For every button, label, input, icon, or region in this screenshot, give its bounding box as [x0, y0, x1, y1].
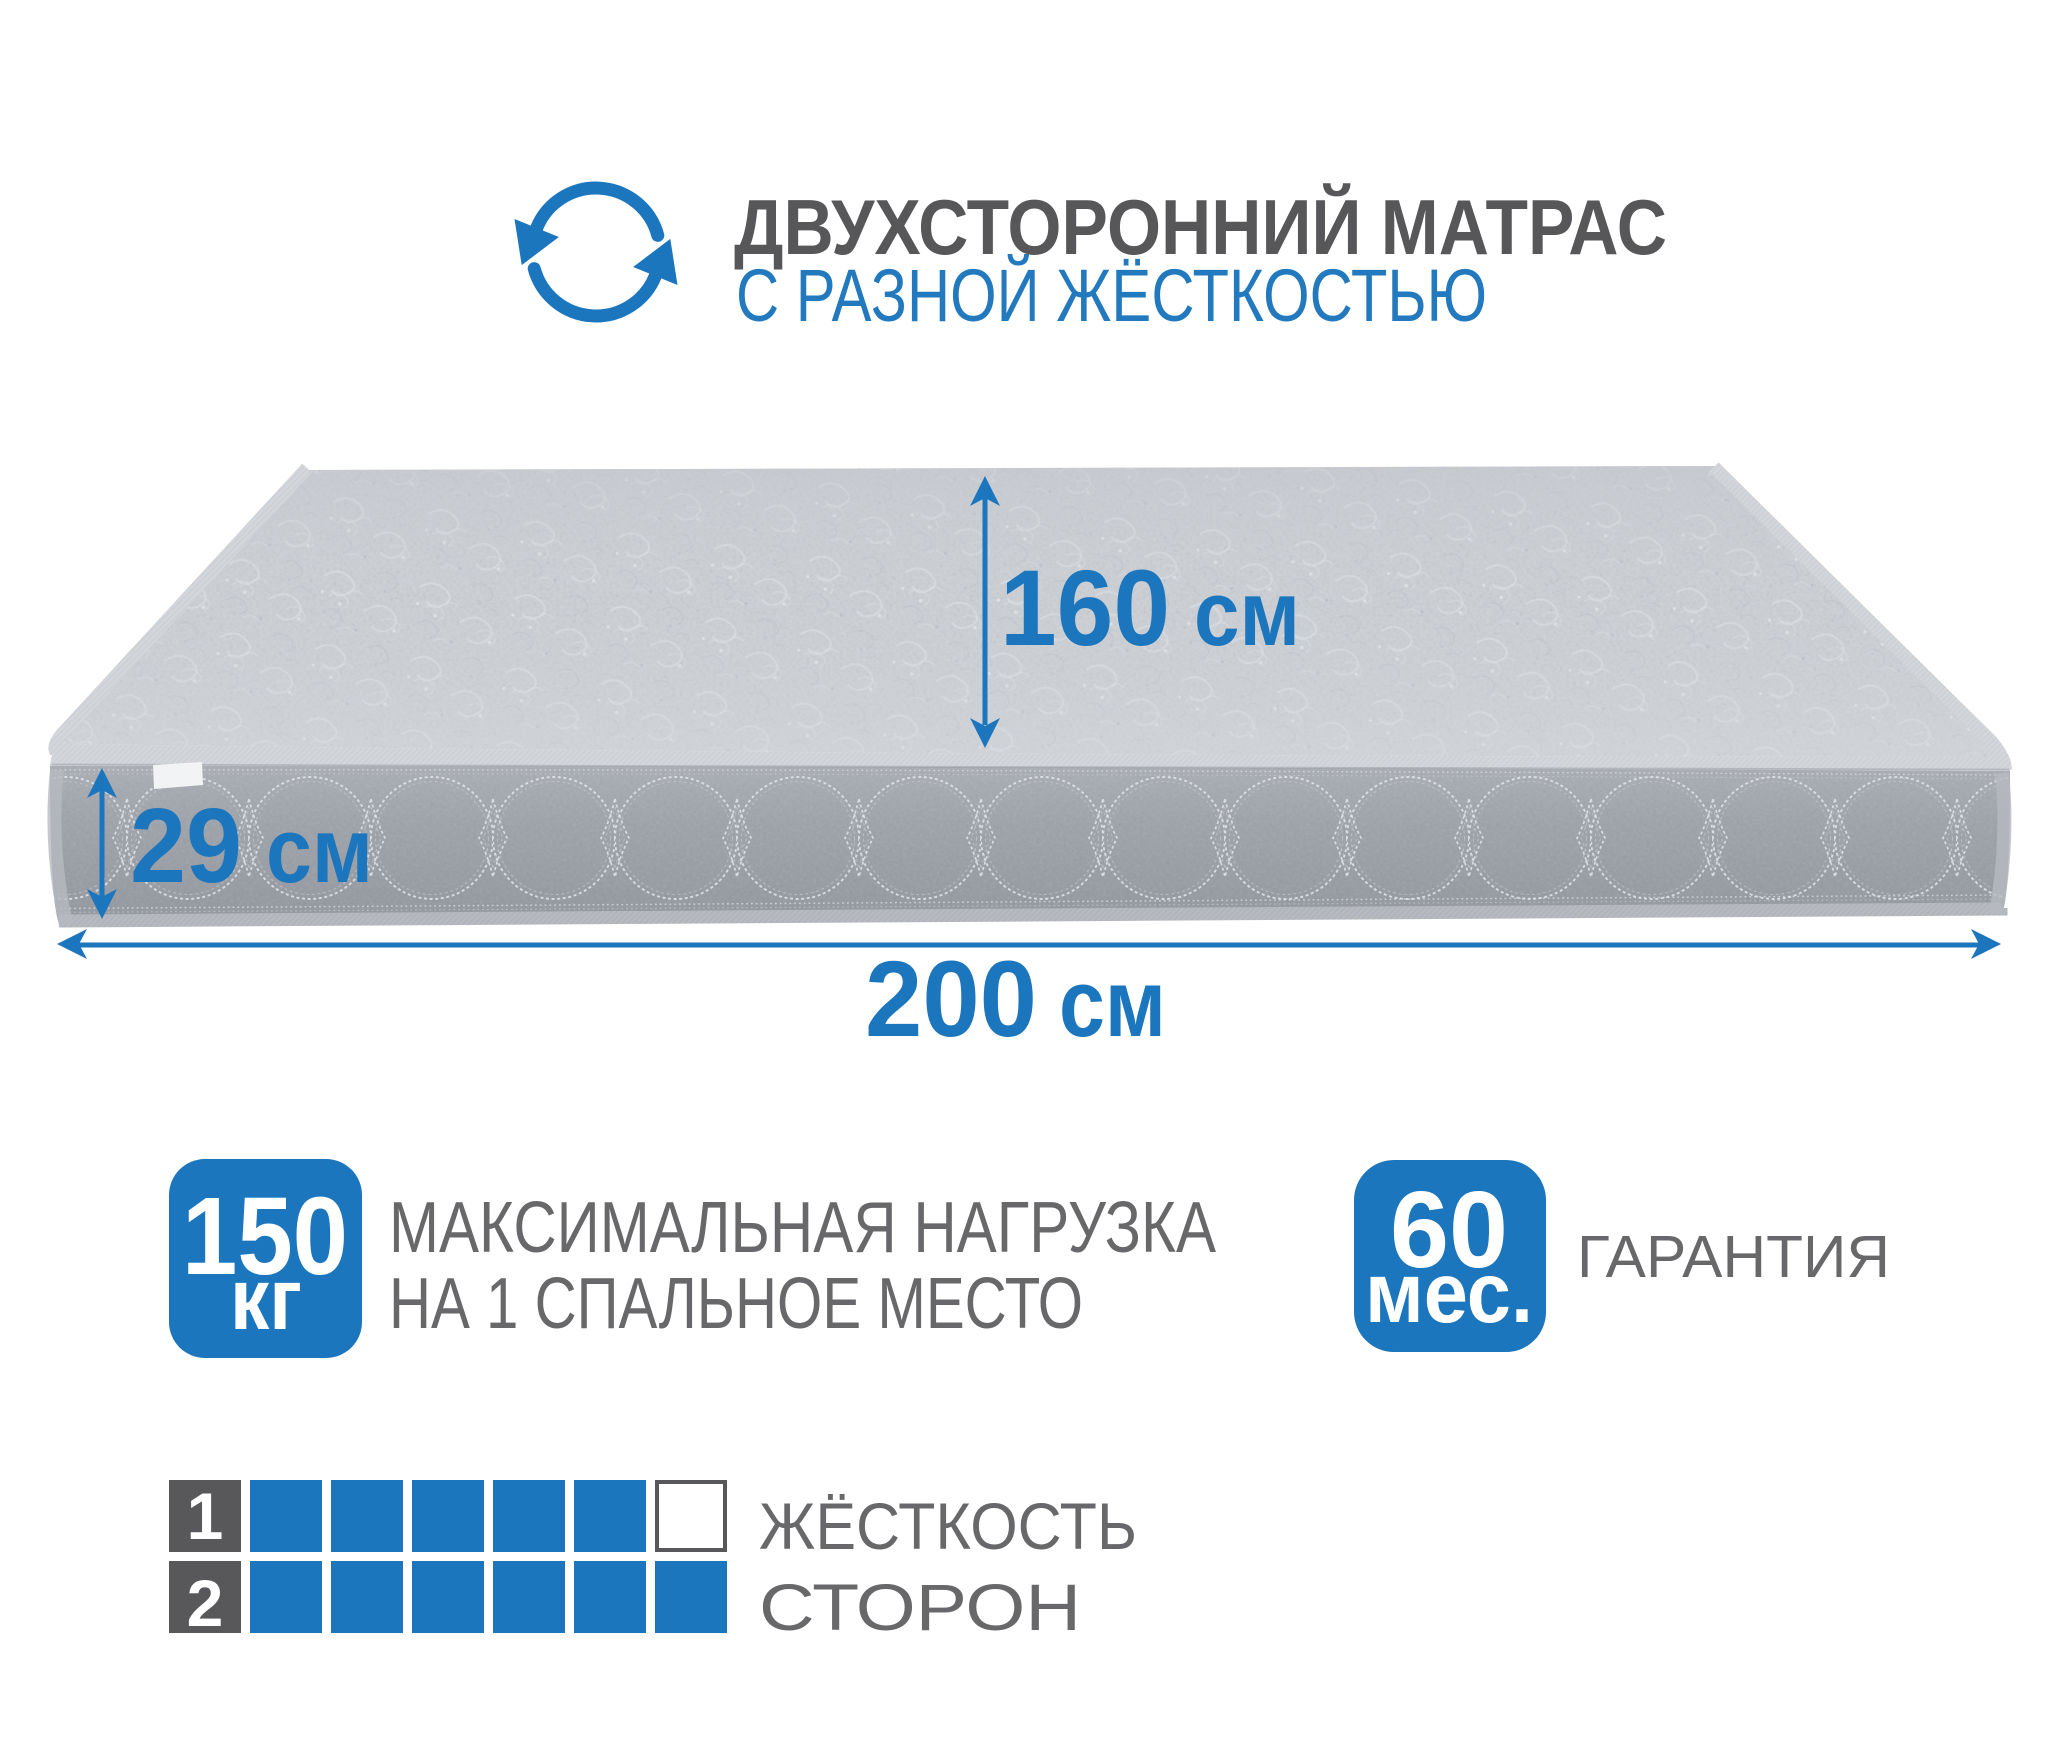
svg-text:2: 2 — [187, 1566, 224, 1640]
svg-text:200: 200 — [865, 938, 1037, 1059]
svg-text:см: см — [1194, 563, 1300, 665]
svg-text:см: см — [1059, 950, 1166, 1057]
svg-text:ЖЁСТКОСТЬ: ЖЁСТКОСТЬ — [759, 1489, 1137, 1563]
svg-text:160: 160 — [1000, 547, 1170, 668]
svg-text:см: см — [266, 800, 373, 902]
svg-text:МАКСИМАЛЬНАЯ НАГРУЗКА: МАКСИМАЛЬНАЯ НАГРУЗКА — [389, 1188, 1216, 1268]
svg-text:С РАЗНОЙ ЖЁСТКОСТЬЮ: С РАЗНОЙ ЖЁСТКОСТЬЮ — [736, 254, 1487, 337]
svg-text:1: 1 — [187, 1479, 224, 1553]
svg-text:кг: кг — [230, 1251, 302, 1348]
svg-text:29: 29 — [130, 787, 242, 905]
svg-text:ГАРАНТИЯ: ГАРАНТИЯ — [1577, 1224, 1890, 1290]
svg-text:СТОРОН: СТОРОН — [759, 1570, 1081, 1644]
svg-text:НА 1 СПАЛЬНОЕ МЕСТО: НА 1 СПАЛЬНОЕ МЕСТО — [389, 1264, 1083, 1344]
svg-text:мес.: мес. — [1365, 1246, 1533, 1341]
